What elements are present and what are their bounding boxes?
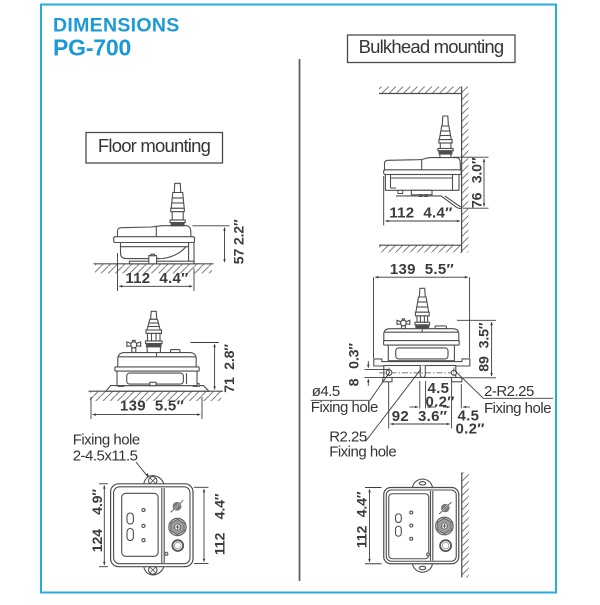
svg-text:Fixing hole: Fixing hole — [329, 444, 396, 461]
svg-text:112 4.4″: 112 4.4″ — [125, 270, 188, 287]
svg-text:Fixing hole: Fixing hole — [484, 400, 551, 417]
svg-text:0.2″: 0.2″ — [456, 421, 485, 438]
svg-text:2.2″: 2.2″ — [232, 219, 248, 245]
svg-text:2.8″: 2.8″ — [222, 344, 238, 370]
svg-text:112: 112 — [212, 533, 228, 556]
svg-text:124: 124 — [90, 529, 106, 552]
svg-text:57: 57 — [232, 249, 248, 265]
svg-text:PG-700: PG-700 — [53, 35, 131, 61]
svg-text:112: 112 — [354, 526, 370, 549]
svg-text:139 5.5″: 139 5.5″ — [120, 398, 184, 415]
svg-text:0.3″: 0.3″ — [346, 343, 362, 369]
svg-text:3.0″: 3.0″ — [469, 157, 485, 183]
svg-text:71: 71 — [222, 377, 238, 393]
svg-text:2-R2.25: 2-R2.25 — [484, 383, 534, 400]
svg-text:76: 76 — [469, 192, 485, 208]
svg-text:4.4″: 4.4″ — [212, 493, 228, 519]
svg-text:Fixing hole: Fixing hole — [311, 399, 378, 416]
svg-text:4.9″: 4.9″ — [90, 489, 106, 515]
svg-text:112 4.4″: 112 4.4″ — [389, 205, 452, 222]
svg-text:4.4″: 4.4″ — [354, 491, 370, 517]
svg-text:Fixing hole: Fixing hole — [73, 431, 140, 448]
svg-text:Floor mounting: Floor mounting — [98, 135, 211, 156]
svg-text:DIMENSIONS: DIMENSIONS — [53, 15, 180, 37]
svg-text:ø4.5: ø4.5 — [312, 383, 340, 400]
svg-text:Bulkhead mounting: Bulkhead mounting — [359, 36, 504, 57]
svg-text:92 3.6″: 92 3.6″ — [392, 408, 448, 425]
svg-text:139 5.5″: 139 5.5″ — [390, 261, 454, 278]
svg-text:2-4.5x11.5: 2-4.5x11.5 — [73, 447, 138, 464]
svg-text:89: 89 — [476, 356, 492, 372]
svg-text:8: 8 — [346, 378, 362, 386]
svg-text:3.5″: 3.5″ — [476, 322, 492, 348]
